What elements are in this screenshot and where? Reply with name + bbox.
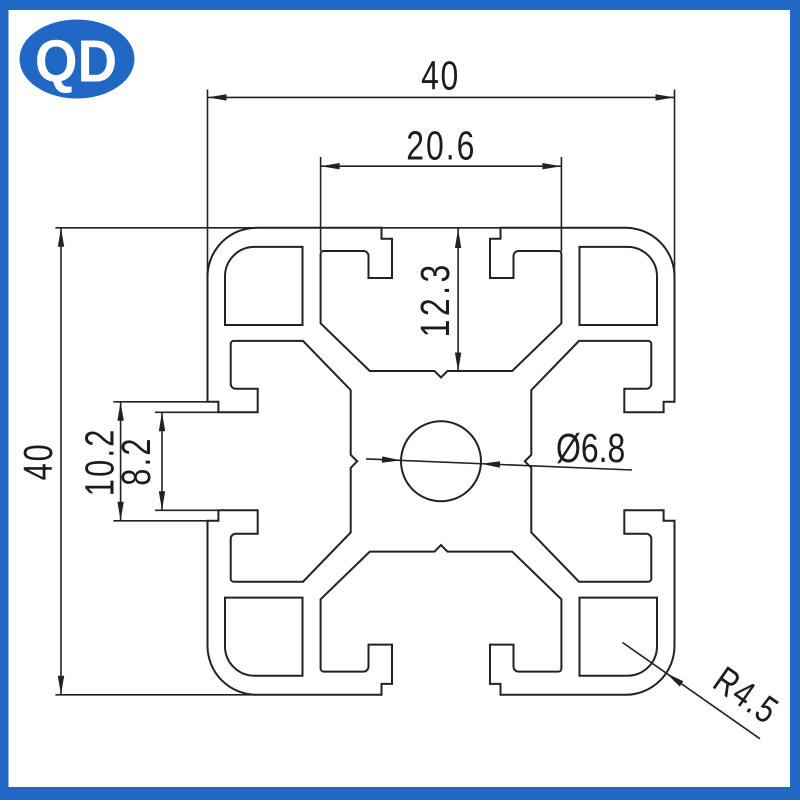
- svg-text:8.2: 8.2: [113, 436, 159, 485]
- svg-text:40: 40: [15, 442, 61, 480]
- svg-text:QD: QD: [35, 29, 117, 95]
- svg-text:40: 40: [421, 53, 460, 99]
- svg-text:20.6: 20.6: [406, 123, 476, 169]
- svg-text:12.3: 12.3: [412, 261, 458, 337]
- svg-text:Ø6.8: Ø6.8: [556, 425, 625, 471]
